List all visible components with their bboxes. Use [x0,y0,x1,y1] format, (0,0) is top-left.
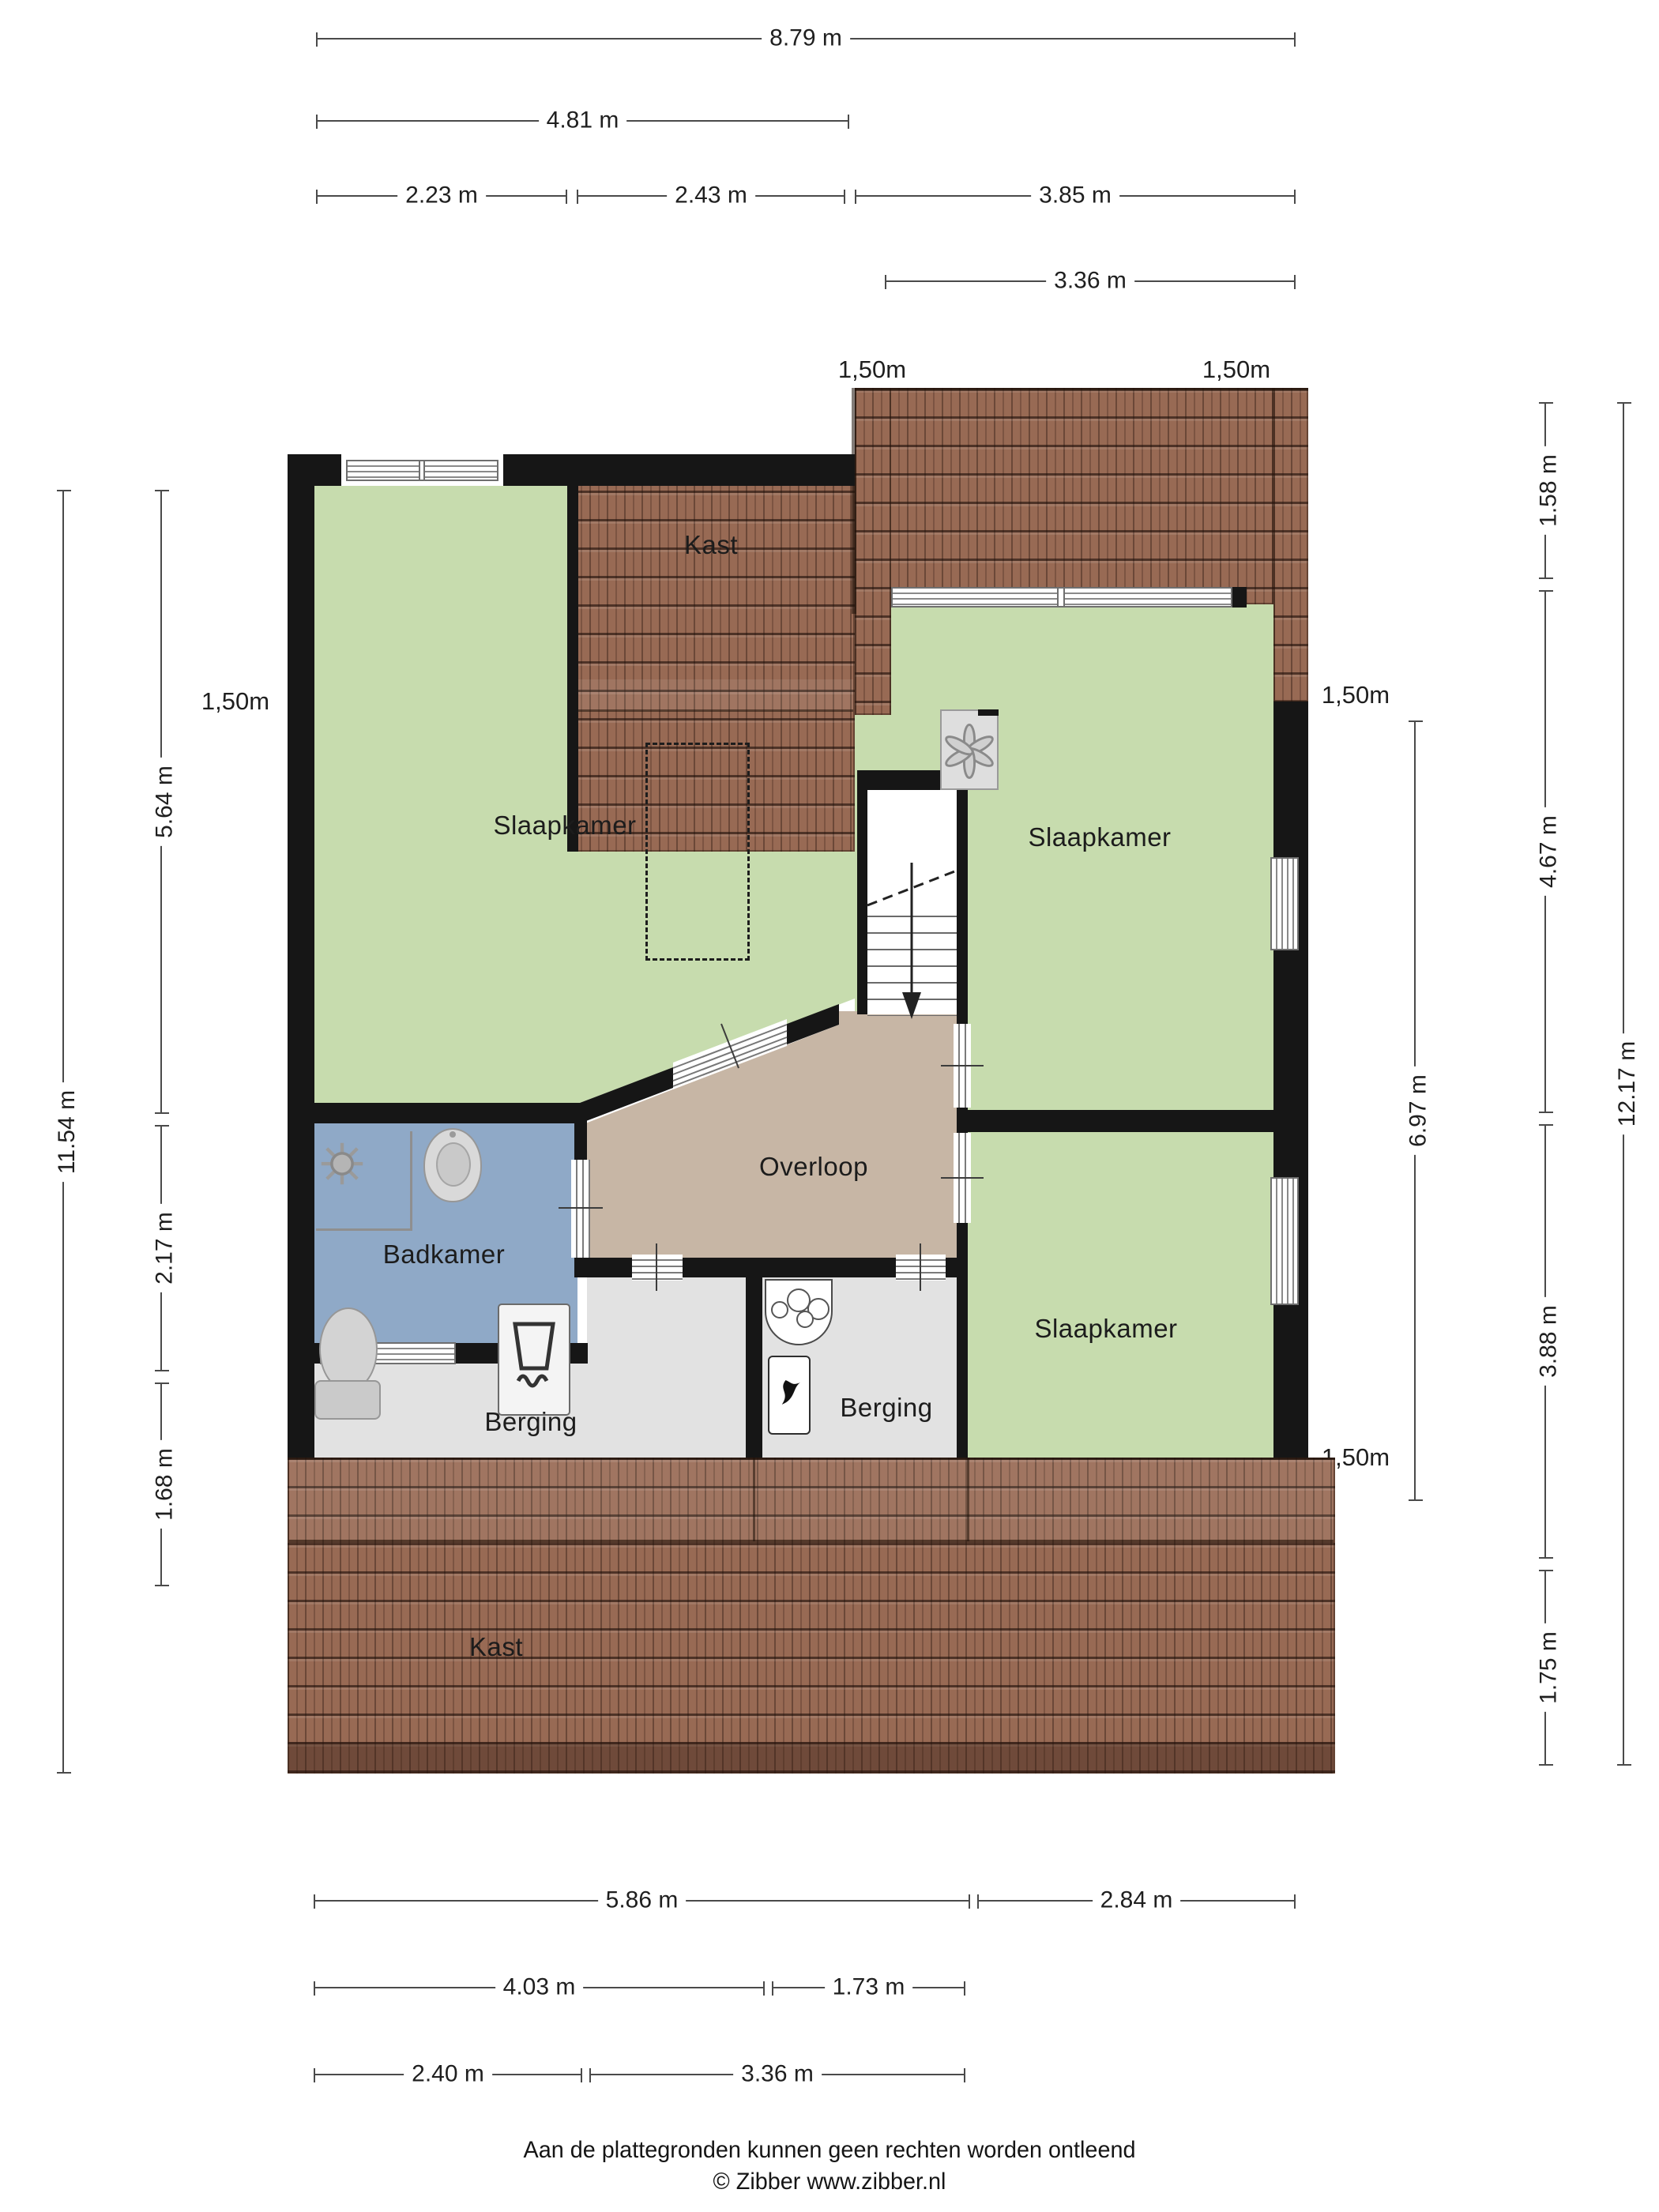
shower-head-icon [314,1136,370,1191]
door-badkamer [571,1160,590,1258]
room-label-kast-top: Kast [684,530,738,560]
dim-top-a: 2.23 m [316,195,567,197]
room-label-badkamer: Badkamer [383,1240,505,1270]
berging-sink-icon [765,1279,833,1345]
room-label-slaapkamer-right-bottom: Slaapkamer [1034,1314,1177,1344]
dim-right-b: 4.67 m [1544,590,1546,1113]
window-right-upper [1270,857,1299,950]
door-berging-right [896,1255,946,1281]
window-right-lower [1270,1177,1299,1305]
dim-left-a: 5.64 m [160,490,162,1114]
room-label-kast-bottom: Kast [469,1632,523,1662]
dim-bottom-r2a: 4.03 m [314,1987,765,1988]
dim-top-total: 8.79 m [316,38,1296,39]
roof-bottom-ridge [289,1540,1334,1543]
roof-bottom-seam-1 [753,1458,755,1541]
fan-unit [940,709,999,790]
roof-dormer-cheek-right [1273,388,1308,702]
room-label-berging-left: Berging [484,1407,577,1437]
boiler-icon [768,1356,811,1435]
staircase-steps [867,901,957,1016]
roof-kast-ridge-line [574,709,853,712]
roof-dormer-cheek-left [855,388,891,715]
roof-bottom-eave [289,1742,1334,1774]
knee-label-top-left: 1,50m [838,355,906,384]
dim-right-a: 1.58 m [1544,402,1546,579]
dim-left-c: 1.68 m [160,1382,162,1586]
knee-label-right-upper: 1,50m [1322,681,1390,709]
window-dormer-divider [1057,587,1065,608]
roof-bottom-seam-2 [967,1458,969,1541]
room-label-berging-right: Berging [840,1393,932,1423]
disclaimer-text: Aan de plattegronden kunnen geen rechten… [33,2137,1626,2164]
copyright-text: © Zibber www.zibber.nl [33,2169,1626,2195]
fan-icon [942,724,997,779]
dim-right-c: 3.88 m [1544,1124,1546,1559]
dim-right-total: 12.17 m [1623,402,1624,1766]
knee-label-left: 1,50m [201,687,269,716]
dim-top-dormer: 3.36 m [885,280,1296,282]
dim-top-b: 2.43 m [577,195,845,197]
wall-kast-left [567,486,578,852]
dim-bottom-r3b: 3.36 m [589,2074,965,2075]
dormer-dashed-outline [645,743,750,961]
wall-berging-divider [746,1277,762,1458]
knee-label-top-right: 1,50m [1202,355,1270,384]
dim-right-d: 1.75 m [1544,1570,1546,1766]
dim-bottom-r1b: 2.84 m [977,1900,1296,1902]
room-slaapkamer-left [314,486,574,1103]
wall-right-outer [1273,702,1308,1458]
roof-kast-ridge-highlight [574,679,853,711]
radiator-icon [498,1303,570,1416]
door-slaapkamer-right-top [954,1024,971,1108]
window-dormer-jamb-right [1232,587,1247,608]
roof-bottom-upper-slope [289,1459,1334,1540]
roof-dormer-top-edge [855,388,1308,391]
dim-top-left-half: 4.81 m [316,120,849,122]
wall-bedroom-divider-right [957,1110,1300,1132]
window-top-left-divider [419,460,425,481]
dim-bottom-r1a: 5.86 m [314,1900,970,1902]
door-berging-left [632,1255,683,1281]
roof-bottom-top-edge [288,1458,1335,1460]
wall-badkamer-top [288,1103,581,1123]
dim-top-c: 3.85 m [855,195,1296,197]
dim-right-mid: 6.97 m [1414,720,1416,1501]
roof-dormer-field [855,388,1273,604]
flame-icon [773,1378,805,1409]
wall-left-outer [288,454,314,1458]
dim-left-total: 11.54 m [62,490,64,1774]
floorplan-page: Kast Slaapkamer Slaapkamer Slaapkamer Ba… [0,0,1659,2212]
room-label-slaapkamer-left: Slaapkamer [493,811,636,841]
dim-bottom-r3a: 2.40 m [314,2074,582,2075]
room-slaapkamer-right-bottom [968,1132,1273,1458]
dim-left-b: 2.17 m [160,1125,162,1371]
wall-stair-left [857,770,867,1014]
room-label-slaapkamer-right-top: Slaapkamer [1028,822,1171,852]
toilet-icon [314,1307,382,1426]
roof-seam-left-block [852,388,856,614]
sink-icon [423,1128,482,1202]
dim-bottom-r2b: 1.73 m [772,1987,965,1988]
room-label-overloop: Overloop [759,1152,868,1182]
door-slaapkamer-right-bottom [954,1133,971,1223]
